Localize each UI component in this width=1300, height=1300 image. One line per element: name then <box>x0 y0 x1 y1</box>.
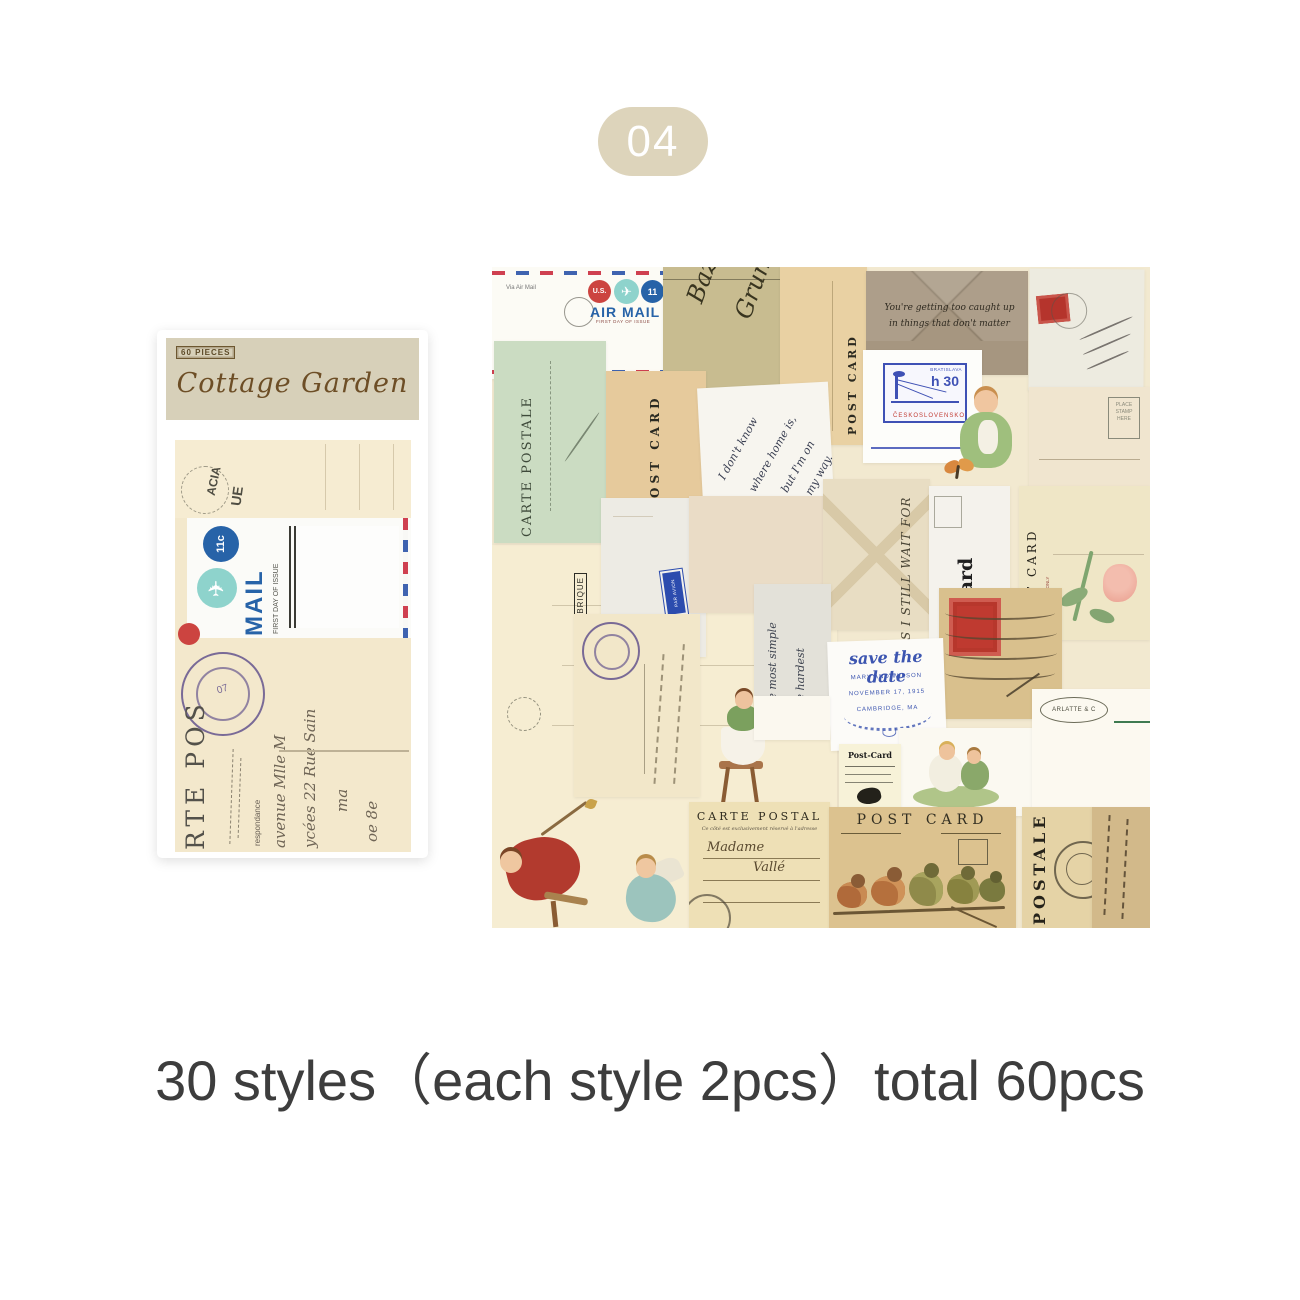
bird-head <box>961 866 975 880</box>
address-line <box>703 880 820 881</box>
wand <box>540 801 587 836</box>
address-line <box>703 858 820 859</box>
airmail-border <box>403 518 408 638</box>
small-print-line <box>550 361 551 511</box>
bird-head <box>851 874 865 888</box>
green-rule <box>1114 721 1150 723</box>
envelope-note-line1: You're getting too caught up <box>882 303 1017 313</box>
stamp-value: 11c <box>215 535 227 553</box>
first-day-text: FIRST DAY OF ISSUE <box>273 524 280 634</box>
air-mail-title: AIR MAIL <box>590 304 660 320</box>
rose-bloom <box>1071 488 1147 554</box>
carte-postal-subtitle: Ce côté est exclusivement réservé à l'ad… <box>689 826 830 832</box>
handwriting-column: oe 8e <box>363 692 381 842</box>
handwriting-squiggles <box>1086 350 1129 370</box>
small-print-line <box>229 749 233 844</box>
carte-postale-title: CARTE POSTALE <box>520 357 535 537</box>
par-avion-sticker: PAR AVION <box>660 569 688 618</box>
green-carte-postale: CARTE POSTALE <box>494 341 606 543</box>
handwriting-word: Bazal <box>681 267 730 307</box>
rose-bud <box>1103 564 1137 602</box>
faint-mark <box>613 516 653 517</box>
post-card-title: POST CARD <box>829 812 1016 828</box>
postmark-inner-ring <box>594 634 630 670</box>
package-window: ACIA UE 11c ✈ MAIL FIRST DAY OF ISSUE 07 <box>175 440 411 852</box>
bird-illustration <box>979 878 1005 902</box>
grass-illustration <box>913 786 999 808</box>
rose-leaf <box>1088 606 1117 626</box>
divider-line <box>294 526 296 628</box>
handwriting-squiggles <box>564 412 600 462</box>
purple-postmark-icon <box>582 622 640 680</box>
sticker-collage: ATELIERS FABRIQUE Via Air Mail U.S. ✈ 11… <box>492 267 1150 928</box>
via-air-mail-text: Via Air Mail <box>506 285 536 292</box>
cancellation-line <box>945 646 1057 660</box>
place-stamp-box: PLACE STAMP HERE <box>1108 397 1140 439</box>
post-card-title: POST CARD <box>846 285 859 435</box>
place-stamp-l2: STAMP <box>1109 409 1139 416</box>
package-header: 60 PIECES Cottage Garden <box>166 338 419 420</box>
cancellation-line <box>945 606 1055 620</box>
still-wait-note: S I STILL WAIT FOR <box>899 464 930 640</box>
small-print-line <box>841 833 901 834</box>
madame-script: Madame <box>707 840 764 855</box>
stamp-box <box>934 496 962 528</box>
script-kraft-strip <box>1092 807 1150 928</box>
save-the-date-title: save the date <box>827 646 944 688</box>
package-title: Cottage Garden <box>166 368 419 399</box>
us-stamp-icon: U.S. <box>588 280 611 303</box>
bird-illustration <box>837 882 867 908</box>
postmark-icon <box>1051 293 1087 329</box>
girl-head <box>735 691 753 709</box>
cherub-illustration <box>614 852 692 928</box>
still-wait-text: S I STILL WAIT FOR <box>899 464 913 640</box>
red-seal-icon <box>178 623 200 645</box>
script-line: the hardest <box>794 594 807 712</box>
postale-title: POSTALE <box>1030 811 1049 925</box>
postcard-line <box>359 444 360 510</box>
cancellation-line <box>945 626 1057 640</box>
piece-count-label: 60 PIECES <box>176 346 235 359</box>
doll-apron <box>978 420 998 454</box>
valle-script: Vallé <box>753 860 785 875</box>
carte-postale-text: RTE POS <box>181 690 210 850</box>
airplane-stamp-icon: ✈ <box>614 279 639 304</box>
girl-in-red-illustration <box>492 807 610 928</box>
badge-label: 04 <box>627 117 680 167</box>
postage-box <box>958 839 988 865</box>
branch <box>833 906 1005 915</box>
butterfly-print <box>856 786 883 807</box>
postcard-line <box>325 444 326 510</box>
print-line <box>845 782 893 783</box>
window-postcard-top: ACIA UE <box>175 440 411 518</box>
date-text: NOVEMBER 17, 1915 <box>829 688 945 698</box>
postcard-divider <box>1053 554 1144 555</box>
small-print-line <box>941 833 1001 834</box>
print-line <box>845 766 895 767</box>
child-head <box>939 744 955 760</box>
airmail-cover: 11c ✈ MAIL FIRST DAY OF ISSUE <box>187 518 411 638</box>
postcard-divider <box>279 750 409 752</box>
postmark-arc <box>181 466 229 514</box>
postmark-text: UE <box>227 485 246 506</box>
handwriting-squiggles <box>673 644 685 784</box>
address-line <box>1039 459 1140 460</box>
correspondance-text: respondance <box>253 696 262 846</box>
divider-line <box>289 526 291 628</box>
bridge-tower <box>893 371 905 377</box>
post-card-title: POST CARD <box>648 383 662 511</box>
stamp-city: BRATISLAVA <box>930 367 962 372</box>
airplane-icon: ✈ <box>204 579 229 597</box>
caption-text: 30 styles（each style 2pcs）total 60pcs <box>155 1049 1145 1112</box>
arlatte-card: ARLATTE & C <box>1032 689 1150 812</box>
blank-label <box>295 526 399 628</box>
handwriting-column: ma <box>333 692 351 812</box>
airmail-border <box>492 271 665 275</box>
carte-postale-postmarked <box>574 614 700 797</box>
scallop-stamp-icon <box>507 697 541 731</box>
cherub-head <box>636 858 656 878</box>
doll-head <box>974 390 998 414</box>
eleven-stamp-icon: 11 <box>641 280 664 303</box>
children-card <box>899 728 1033 816</box>
post-card-fragment-title: Post-Card <box>843 750 897 760</box>
bird-head <box>924 863 939 878</box>
par-avion-label: PAR AVION <box>670 579 679 608</box>
postmark-icon <box>1054 841 1093 899</box>
place-stamp-l1: PLACE <box>1109 402 1139 409</box>
bench-leg <box>551 901 559 927</box>
air-mail-text: MAIL <box>241 520 269 636</box>
airplane-stamp-icon: ✈ <box>197 568 237 608</box>
postcard-line <box>832 281 833 431</box>
caption: 30 styles（each style 2pcs）total 60pcs <box>0 1036 1300 1117</box>
white-note: I don't know where home is, but I'm on m… <box>697 382 834 506</box>
butterfly-illustration <box>942 457 982 491</box>
product-package: 60 PIECES Cottage Garden ACIA UE 11c ✈ M… <box>157 330 428 858</box>
bridge-cable <box>896 383 933 399</box>
postmark-inner-ring <box>1066 853 1093 885</box>
bird-head <box>990 871 1002 883</box>
handwriting-squiggles <box>1103 815 1110 915</box>
girl-head <box>500 851 522 873</box>
arlatte-label: ARLATTE & C <box>1052 707 1096 713</box>
laurel-bow <box>882 728 896 737</box>
birds-postcard: POST CARD <box>829 807 1016 928</box>
butterfly-body <box>955 465 960 479</box>
handwriting-column: ycées 22 Rue Sain <box>301 638 319 848</box>
first-day-subtitle: FIRST DAY OF ISSUE <box>596 319 650 324</box>
print-line <box>845 774 891 775</box>
child-green-jacket <box>961 760 989 790</box>
small-print-line <box>238 758 242 838</box>
style-number-badge: 04 <box>598 107 708 176</box>
vintage-envelope <box>1028 269 1144 392</box>
rose-leaf <box>1057 584 1090 610</box>
eleven-cent-stamp-icon: 11c <box>203 526 239 562</box>
carte-postal-card: CARTE POSTAL Ce côté est exclusivement r… <box>689 802 830 928</box>
bird-illustration <box>909 872 943 906</box>
place-stamp-l3: HERE <box>1109 416 1139 423</box>
star-icon <box>585 798 598 811</box>
envelope-note-line2: in things that don't matter <box>882 319 1017 329</box>
bird-illustration <box>947 874 979 904</box>
handwriting-column: avenue Mlle M <box>271 638 289 848</box>
postcard-divider <box>644 664 645 774</box>
bird-head <box>887 867 902 882</box>
handwriting-squiggles <box>1121 819 1128 919</box>
handwriting-word: Grund <box>729 267 782 323</box>
carte-postal-title: CARTE POSTAL <box>689 810 830 823</box>
handwriting-squiggles <box>653 654 664 784</box>
postale-strip: POSTALE <box>1022 807 1093 928</box>
bird-illustration <box>871 876 905 906</box>
postcard-line <box>393 444 394 510</box>
small-white-card <box>754 696 830 740</box>
postmark-icon <box>689 894 731 928</box>
arlatte-oval-stamp: ARLATTE & C <box>1040 697 1108 723</box>
child-head <box>967 750 981 764</box>
